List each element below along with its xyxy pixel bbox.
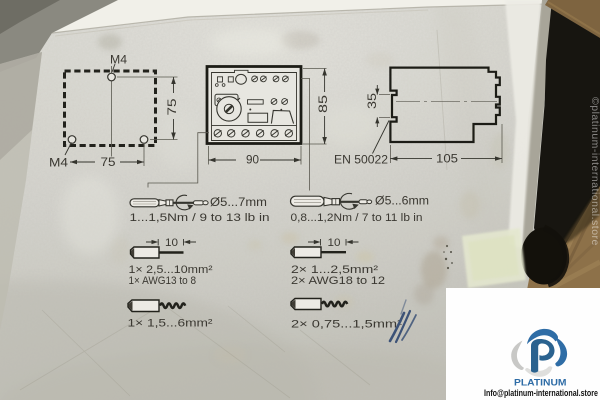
svg-text:1× AWG13 to 8: 1× AWG13 to 8: [129, 275, 197, 287]
svg-text:0,8...1,2Nm / 7 to 11 lb in: 0,8...1,2Nm / 7 to 11 lb in: [291, 212, 423, 224]
svg-text:1...1,5Nm / 9 to 13 lb in: 1...1,5Nm / 9 to 13 lb in: [130, 212, 270, 224]
svg-text:2× AWG18 to 12: 2× AWG18 to 12: [291, 275, 385, 287]
svg-text:EN 50022: EN 50022: [334, 155, 388, 167]
svg-text:©platinum-international.store: ©platinum-international.store: [589, 97, 600, 246]
svg-text:85: 85: [316, 95, 330, 113]
svg-text:Info@platinum-international.st: Info@platinum-international.store: [484, 388, 598, 398]
svg-text:90: 90: [246, 153, 259, 167]
svg-text:PLATINUM: PLATINUM: [514, 378, 567, 389]
svg-text:M4: M4: [49, 156, 68, 170]
svg-text:75: 75: [165, 98, 179, 115]
svg-text:Ø5...6mm: Ø5...6mm: [375, 196, 429, 208]
svg-text:Ø5...7mm: Ø5...7mm: [210, 197, 267, 209]
svg-text:1× 1,5...6mm²: 1× 1,5...6mm²: [128, 318, 213, 330]
svg-text:M4: M4: [110, 53, 127, 67]
svg-text:75: 75: [101, 155, 116, 169]
svg-text:2× 0,75...1,5mm²: 2× 0,75...1,5mm²: [291, 319, 402, 331]
svg-text:105: 105: [436, 154, 458, 166]
svg-text:35: 35: [365, 93, 379, 109]
svg-text:10: 10: [165, 237, 178, 249]
svg-text:10: 10: [328, 237, 341, 249]
